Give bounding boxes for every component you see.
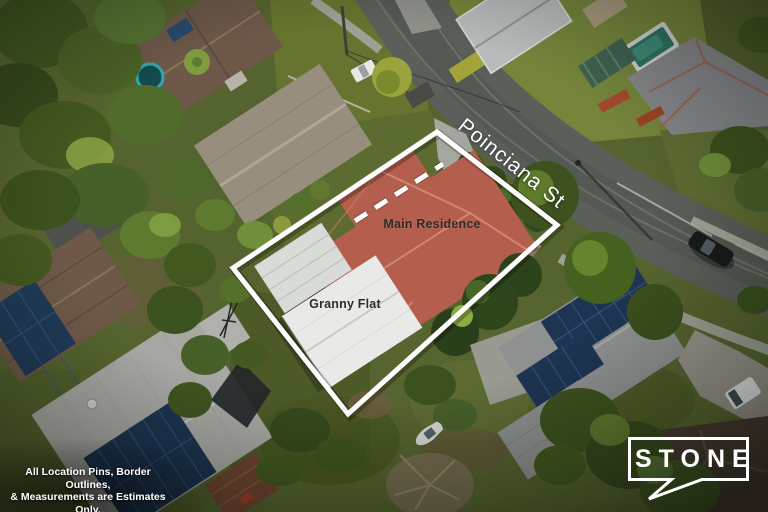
disclaimer-line-2: & Measurements are Estimates Only. (4, 491, 172, 512)
satellite-dish (87, 399, 97, 409)
disclaimer-text: All Location Pins, Border Outlines, & Me… (4, 466, 172, 512)
stone-logo: STONE (628, 437, 749, 480)
stone-logo-text: STONE (628, 437, 749, 480)
aerial-photo-scene: Poinciana St Main Residence Granny Flat … (0, 0, 768, 512)
disclaimer-line-1: All Location Pins, Border Outlines, (4, 466, 172, 491)
aerial-photo (0, 0, 768, 512)
